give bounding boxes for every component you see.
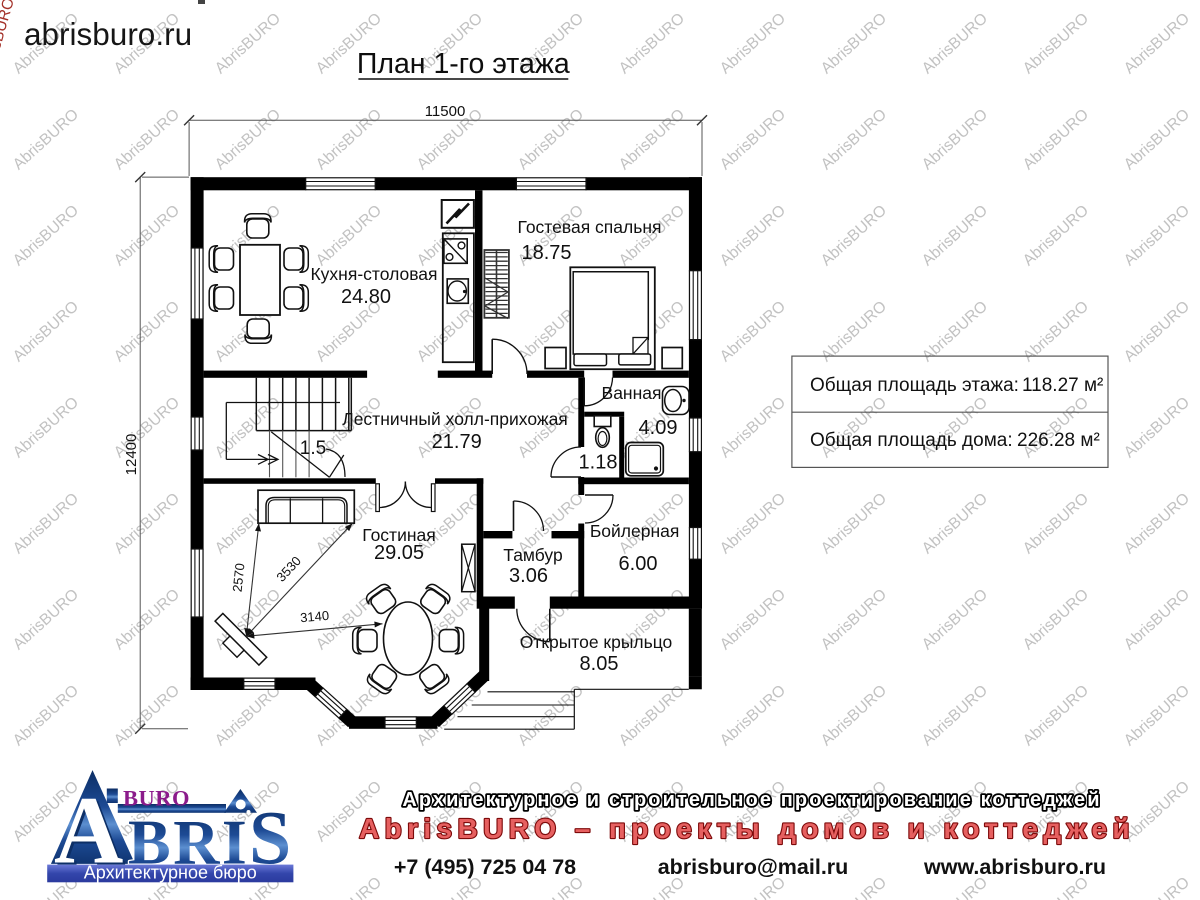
svg-text:AbrisBURO: AbrisBURO bbox=[717, 586, 789, 653]
svg-text:Тамбур: Тамбур bbox=[503, 545, 562, 565]
svg-text:4.09: 4.09 bbox=[639, 417, 678, 439]
svg-text:AbrisBURO: AbrisBURO bbox=[111, 490, 183, 557]
svg-text:AbrisBURO: AbrisBURO bbox=[818, 586, 890, 653]
svg-text:AbrisBURO: AbrisBURO bbox=[515, 106, 587, 173]
svg-text:118.27 м²: 118.27 м² bbox=[1022, 375, 1103, 396]
svg-text:29.05: 29.05 bbox=[374, 542, 424, 564]
svg-text:AbrisBURO: AbrisBURO bbox=[1121, 586, 1193, 653]
svg-text:AbrisBURO: AbrisBURO bbox=[1020, 10, 1092, 77]
svg-text:AbrisBURO: AbrisBURO bbox=[10, 586, 82, 653]
svg-text:AbrisBURO: AbrisBURO bbox=[616, 682, 688, 749]
svg-text:AbrisBURO: AbrisBURO bbox=[919, 682, 991, 749]
svg-text:План 1-го этажа: План 1-го этажа bbox=[357, 48, 570, 80]
svg-text:AbrisBURO: AbrisBURO bbox=[212, 394, 284, 461]
svg-text:AbrisBURO: AbrisBURO bbox=[1121, 682, 1193, 749]
svg-text:AbrisBURO: AbrisBURO bbox=[1121, 298, 1193, 365]
svg-text:AbrisBURO: AbrisBURO bbox=[313, 298, 385, 365]
svg-text:AbrisBURO: AbrisBURO bbox=[717, 490, 789, 557]
svg-text:11500: 11500 bbox=[425, 103, 466, 120]
svg-text:3.06: 3.06 bbox=[509, 565, 548, 587]
svg-text:AbrisBURO: AbrisBURO bbox=[919, 586, 991, 653]
svg-text:Общая площадь этажа:: Общая площадь этажа: bbox=[810, 375, 1019, 396]
svg-text:AbrisBURO: AbrisBURO bbox=[818, 202, 890, 269]
svg-text:AbrisBURO: AbrisBURO bbox=[717, 10, 789, 77]
svg-text:AbrisBURO: AbrisBURO bbox=[1020, 394, 1092, 461]
svg-text:AbrisBURO: AbrisBURO bbox=[1020, 106, 1092, 173]
svg-text:AbrisBURO: AbrisBURO bbox=[919, 106, 991, 173]
svg-text:AbrisBURO: AbrisBURO bbox=[111, 394, 183, 461]
svg-text:AbrisBURO: AbrisBURO bbox=[818, 106, 890, 173]
svg-text:AbrisBURO: AbrisBURO bbox=[616, 106, 688, 173]
svg-text:AbrisBURO: AbrisBURO bbox=[313, 874, 385, 900]
svg-text:AbrisBURO – проекты домов и ко: AbrisBURO – проекты домов и коттеджей bbox=[359, 813, 1135, 844]
svg-text:AbrisBURO: AbrisBURO bbox=[10, 106, 82, 173]
svg-text:1.18: 1.18 bbox=[579, 452, 618, 474]
svg-text:Гостевая спальня: Гостевая спальня bbox=[518, 217, 662, 237]
svg-text:AbrisBURO: AbrisBURO bbox=[1020, 298, 1092, 365]
svg-text:AbrisBURO: AbrisBURO bbox=[10, 394, 82, 461]
svg-text:AbrisBURO: AbrisBURO bbox=[1121, 874, 1193, 900]
svg-text:226.28 м²: 226.28 м² bbox=[1017, 430, 1100, 451]
svg-text:Общая площадь дома:: Общая площадь дома: bbox=[810, 430, 1013, 451]
svg-text:AbrisBURO: AbrisBURO bbox=[10, 298, 82, 365]
svg-text:Открытое крыльцо: Открытое крыльцо bbox=[520, 632, 673, 652]
svg-text:www.abrisburo.ru: www.abrisburo.ru bbox=[923, 855, 1106, 879]
svg-text:AbrisBURO: AbrisBURO bbox=[1020, 490, 1092, 557]
svg-text:Ванная: Ванная bbox=[602, 383, 662, 403]
svg-text:AbrisBURO: AbrisBURO bbox=[313, 202, 385, 269]
svg-text:AbrisBURO: AbrisBURO bbox=[1121, 394, 1193, 461]
svg-text:AbrisBURO: AbrisBURO bbox=[717, 682, 789, 749]
svg-text:AbrisBURO: AbrisBURO bbox=[717, 202, 789, 269]
svg-text:AbrisBURO: AbrisBURO bbox=[1020, 586, 1092, 653]
svg-text:8.05: 8.05 bbox=[580, 653, 619, 675]
svg-text:AbrisBURO: AbrisBURO bbox=[919, 298, 991, 365]
svg-text:AbrisBURO: AbrisBURO bbox=[10, 490, 82, 557]
svg-text:24.80: 24.80 bbox=[341, 286, 391, 308]
svg-text:AbrisBURO: AbrisBURO bbox=[818, 10, 890, 77]
svg-text:AbrisBURO: AbrisBURO bbox=[717, 298, 789, 365]
svg-text:AbrisBURO: AbrisBURO bbox=[717, 394, 789, 461]
svg-text:18.75: 18.75 bbox=[521, 242, 571, 264]
svg-text:AbrisBURO: AbrisBURO bbox=[111, 106, 183, 173]
svg-text:1.5: 1.5 bbox=[300, 438, 326, 459]
svg-text:AbrisBURO: AbrisBURO bbox=[818, 490, 890, 557]
svg-text:AbrisBURO: AbrisBURO bbox=[919, 202, 991, 269]
svg-text:+7 (495) 725 04 78: +7 (495) 725 04 78 bbox=[394, 855, 576, 879]
svg-text:AbrisBURO: AbrisBURO bbox=[1121, 106, 1193, 173]
svg-text:Лестничный холл-прихожая: Лестничный холл-прихожая bbox=[342, 409, 568, 429]
svg-text:AbrisBURO: AbrisBURO bbox=[717, 106, 789, 173]
svg-text:AbrisBURO: AbrisBURO bbox=[111, 298, 183, 365]
svg-text:Бойлерная: Бойлерная bbox=[590, 521, 680, 541]
svg-text:Кухня-столовая: Кухня-столовая bbox=[310, 264, 437, 284]
svg-text:BURO: BURO bbox=[123, 786, 190, 811]
svg-text:AbrisBURO: AbrisBURO bbox=[212, 10, 284, 77]
svg-text:Архитектурное и строительное п: Архитектурное и строительное проектирова… bbox=[402, 789, 1101, 811]
svg-text:AbrisBURO: AbrisBURO bbox=[919, 10, 991, 77]
svg-text:AbrisBURO: AbrisBURO bbox=[919, 394, 991, 461]
svg-text:3140: 3140 bbox=[300, 608, 330, 625]
svg-text:2570: 2570 bbox=[230, 562, 248, 592]
svg-text:AbrisBURO: AbrisBURO bbox=[313, 106, 385, 173]
svg-text:AbrisBURO: AbrisBURO bbox=[212, 682, 284, 749]
svg-text:AbrisBURO: AbrisBURO bbox=[111, 586, 183, 653]
svg-text:Архитектурное бюро: Архитектурное бюро bbox=[84, 862, 257, 882]
svg-text:AbrisBURO: AbrisBURO bbox=[1020, 682, 1092, 749]
svg-text:AbrisBURO: AbrisBURO bbox=[1121, 202, 1193, 269]
svg-text:AbrisBURO: AbrisBURO bbox=[818, 298, 890, 365]
svg-text:AbrisBURO: AbrisBURO bbox=[919, 490, 991, 557]
svg-text:AbrisBURO: AbrisBURO bbox=[111, 682, 183, 749]
svg-text:abrisburo.ru: abrisburo.ru bbox=[24, 16, 192, 52]
svg-text:AbrisBURO: AbrisBURO bbox=[111, 202, 183, 269]
svg-text:AbrisBURO: AbrisBURO bbox=[818, 394, 890, 461]
svg-text:AbrisBURO: AbrisBURO bbox=[1121, 10, 1193, 77]
svg-text:6.00: 6.00 bbox=[619, 553, 658, 575]
svg-text:AbrisBURO: AbrisBURO bbox=[212, 106, 284, 173]
svg-text:abrisburo@mail.ru: abrisburo@mail.ru bbox=[658, 855, 849, 879]
svg-text:AbrisBURO: AbrisBURO bbox=[1020, 202, 1092, 269]
svg-text:AbrisBURO: AbrisBURO bbox=[10, 682, 82, 749]
svg-text:AbrisBURO: AbrisBURO bbox=[818, 682, 890, 749]
svg-text:AbrisBURO: AbrisBURO bbox=[10, 202, 82, 269]
svg-text:21.79: 21.79 bbox=[432, 431, 482, 453]
svg-text:AbrisBURO: AbrisBURO bbox=[616, 10, 688, 77]
svg-text:12400: 12400 bbox=[123, 434, 140, 476]
svg-text:AbrisBURO: AbrisBURO bbox=[1121, 490, 1193, 557]
